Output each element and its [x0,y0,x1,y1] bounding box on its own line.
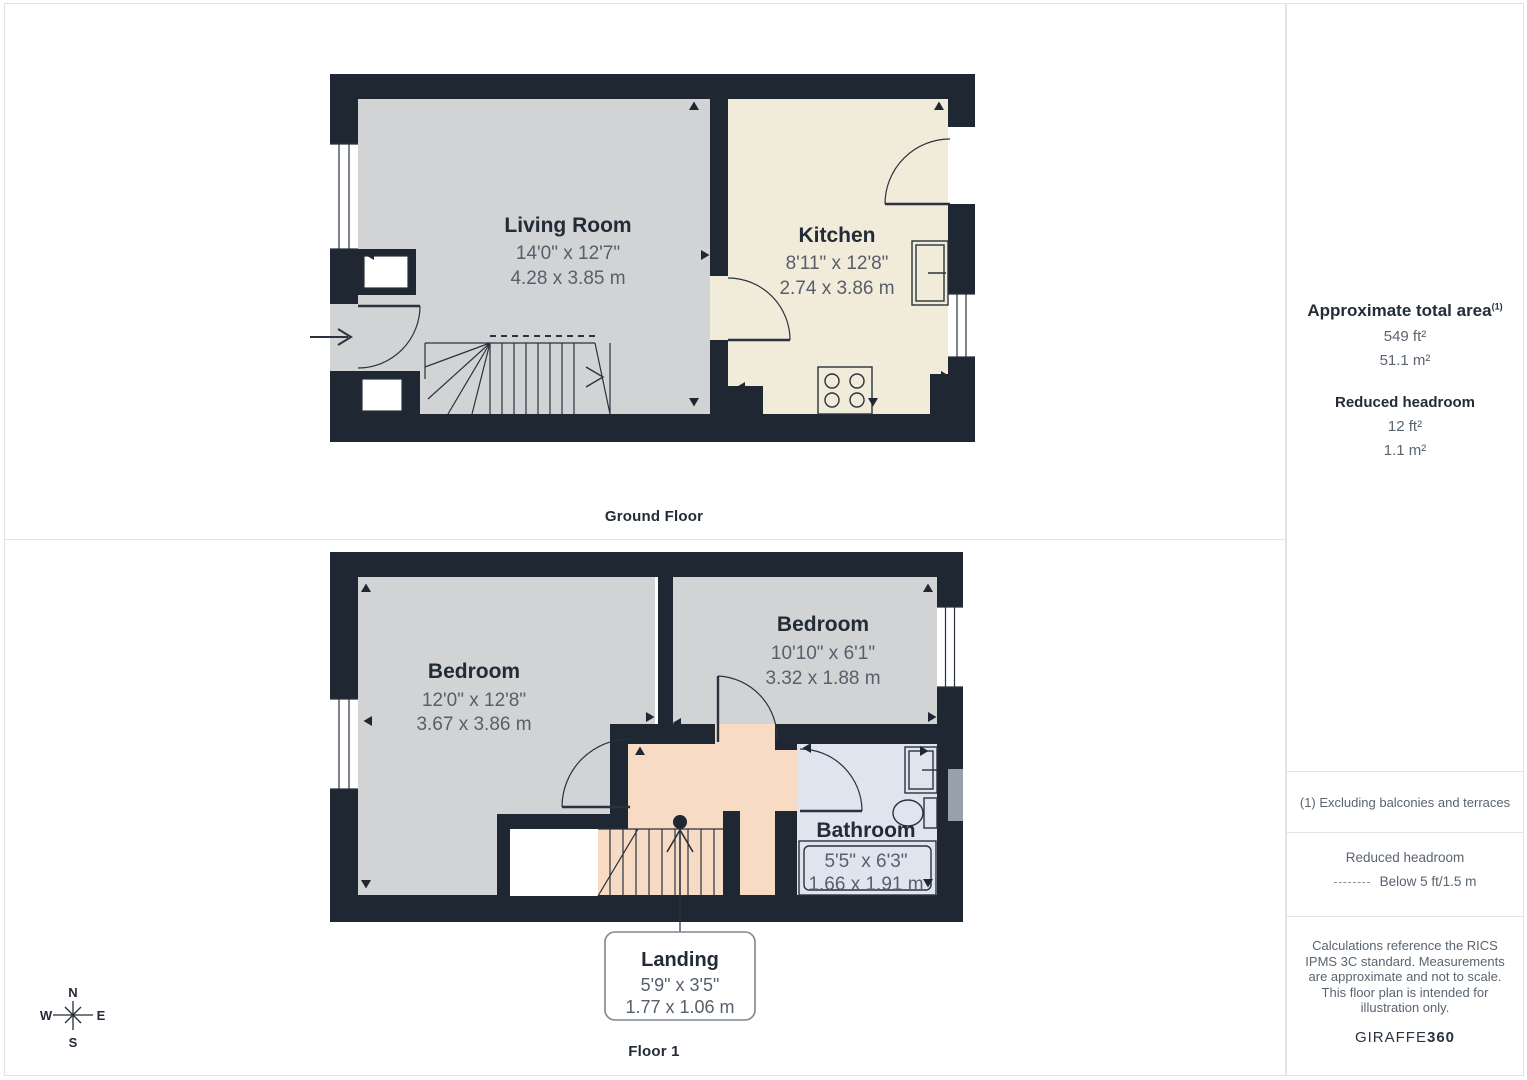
landing-door-strip [775,744,797,811]
total-area-ft: 549 ft² [1287,328,1523,345]
room-dims-ft: 14'0" x 12'7" [516,243,620,264]
compass-star-icon [53,1001,93,1030]
bedroom-divider-wall [658,577,673,727]
ground-floor-caption: Ground Floor [330,508,978,525]
area-summary-section: Approximate total area(1) 549 ft² 51.1 m… [1287,4,1523,771]
room-name: Bedroom [428,660,520,683]
dashed-line-icon [1334,882,1370,883]
room-dims-ft: 10'10" x 6'1" [771,643,875,664]
stairs-right-wall [723,811,740,896]
room-name: Kitchen [798,224,875,247]
bedroom2-door-gap [715,724,775,744]
compass-east: E [97,1008,106,1023]
floors-divider [5,539,1285,540]
compass-west: W [40,1008,53,1023]
bathroom-wall-stub [775,744,797,750]
room-dims-ft: 12'0" x 12'8" [422,690,526,711]
room-name: Living Room [504,214,631,237]
kitchen-notch-wall [728,386,763,414]
footnote-text: (1) Excluding balconies and terraces [1300,795,1510,810]
footnote-section: (1) Excluding balconies and terraces [1287,771,1523,833]
reduced-headroom-ft: 12 ft² [1287,418,1523,435]
room-dims-m: 4.28 x 3.85 m [510,268,625,289]
stairwell-void [510,829,598,896]
room-dims-m: 3.32 x 1.88 m [765,668,880,689]
landing-top-wall [610,724,963,744]
compass-north: N [68,985,77,1000]
brand-name-normal: GIRAFFE [1355,1029,1427,1046]
disclaimer-section: Calculations reference the RICS IPMS 3C … [1287,916,1523,1075]
compass-south: S [69,1035,78,1050]
closet-recess [362,379,402,411]
legend-section: Reduced headroom Below 5 ft/1.5 m [1287,832,1523,916]
kitchen-stub-wall [930,374,948,414]
brand-name-bold: 360 [1427,1029,1455,1046]
window [330,699,358,789]
total-area-label: Approximate total area [1307,301,1491,320]
room-name: Bathroom [816,819,915,842]
reduced-headroom-m: 1.1 m² [1287,442,1523,459]
stair-start-dot [673,815,687,829]
room-dims-ft: 8'11" x 12'8" [786,253,889,274]
reduced-headroom-heading: Reduced headroom [1287,394,1523,411]
room-name: Bedroom [777,613,869,636]
room-dims-m: 1.66 x 1.91 m [808,874,923,895]
compass-rose: N S W E [23,972,118,1054]
ground-floor-plan: Living Room 14'0" x 12'7" 4.28 x 3.85 m … [305,69,980,449]
room-dims-ft: 5'9" x 3'5" [641,975,720,995]
total-area-m: 51.1 m² [1287,352,1523,369]
kitchen-door-gap [710,276,728,340]
legend-row: Below 5 ft/1.5 m [1287,874,1523,889]
window [948,294,975,357]
info-sidebar: Approximate total area(1) 549 ft² 51.1 m… [1287,4,1523,1075]
legend-title: Reduced headroom [1287,850,1523,865]
reduced-headroom-strip [948,769,963,821]
disclaimer-text: Calculations reference the RICS IPMS 3C … [1304,938,1506,1016]
chimney-recess [364,256,408,288]
floor1-plan: Bedroom 12'0" x 12'8" 3.67 x 3.86 m Bedr… [305,547,968,1025]
legend-item-text: Below 5 ft/1.5 m [1380,874,1477,889]
stairwell-left-wall [497,814,510,896]
giraffe360-logo: GIRAFFE360 [1304,1029,1506,1046]
page-frame: Living Room 14'0" x 12'7" 4.28 x 3.85 m … [4,3,1524,1076]
window [330,144,358,249]
landing-left-wall [610,739,628,829]
bathroom-left-wall [775,811,797,896]
room-dims-m: 3.67 x 3.86 m [416,714,531,735]
floor1-caption: Floor 1 [330,1043,978,1060]
stairwell-top-wall [497,814,610,829]
room-name: Landing [641,949,719,971]
room-dims-m: 1.77 x 1.06 m [625,997,734,1017]
footnote-mark: (1) [1492,301,1503,311]
total-area-heading: Approximate total area(1) [1287,301,1523,321]
window [937,607,963,687]
room-dims-ft: 5'5" x 6'3" [824,851,907,872]
room-dims-m: 2.74 x 3.86 m [779,278,894,299]
